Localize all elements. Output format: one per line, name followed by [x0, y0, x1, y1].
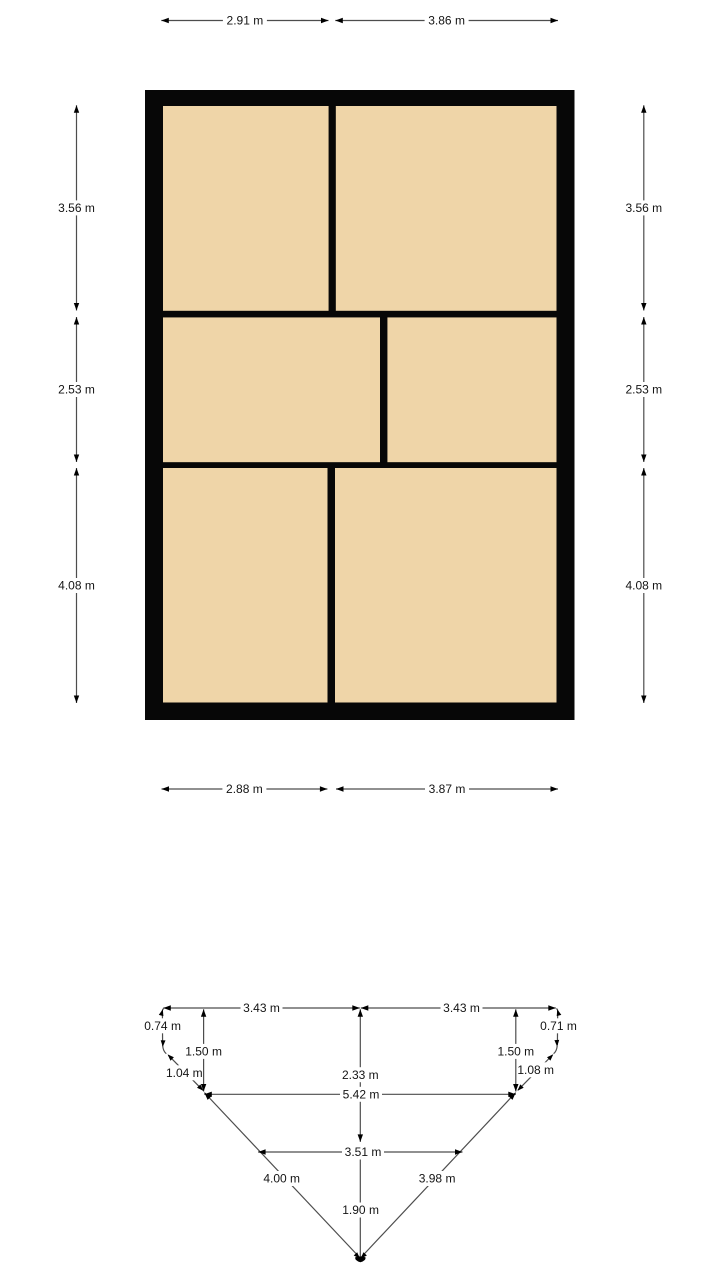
svg-text:3.43 m: 3.43 m — [243, 1001, 280, 1015]
svg-text:1.08 m: 1.08 m — [517, 1063, 554, 1077]
svg-text:0.74 m: 0.74 m — [144, 1019, 181, 1033]
svg-text:3.56 m: 3.56 m — [625, 201, 662, 215]
svg-text:4.08 m: 4.08 m — [625, 579, 662, 593]
svg-text:5.42 m: 5.42 m — [343, 1088, 380, 1102]
svg-text:2.53 m: 2.53 m — [58, 383, 95, 397]
svg-text:3.86 m: 3.86 m — [428, 14, 465, 28]
svg-text:2.33 m: 2.33 m — [342, 1068, 379, 1082]
svg-text:3.87 m: 3.87 m — [429, 782, 466, 796]
svg-text:1.04 m: 1.04 m — [166, 1066, 203, 1080]
svg-text:4.00 m: 4.00 m — [263, 1172, 300, 1186]
svg-text:2.53 m: 2.53 m — [625, 383, 662, 397]
svg-text:3.51 m: 3.51 m — [345, 1145, 382, 1159]
svg-text:1.90 m: 1.90 m — [342, 1203, 379, 1217]
svg-text:1.50 m: 1.50 m — [497, 1045, 534, 1059]
svg-text:3.56 m: 3.56 m — [58, 201, 95, 215]
svg-text:1.50 m: 1.50 m — [185, 1045, 222, 1059]
svg-text:4.08 m: 4.08 m — [58, 579, 95, 593]
svg-text:3.43 m: 3.43 m — [443, 1001, 480, 1015]
svg-text:2.88 m: 2.88 m — [226, 782, 263, 796]
svg-text:0.71 m: 0.71 m — [540, 1019, 577, 1033]
svg-text:2.91 m: 2.91 m — [227, 14, 264, 28]
svg-text:3.98 m: 3.98 m — [419, 1172, 456, 1186]
